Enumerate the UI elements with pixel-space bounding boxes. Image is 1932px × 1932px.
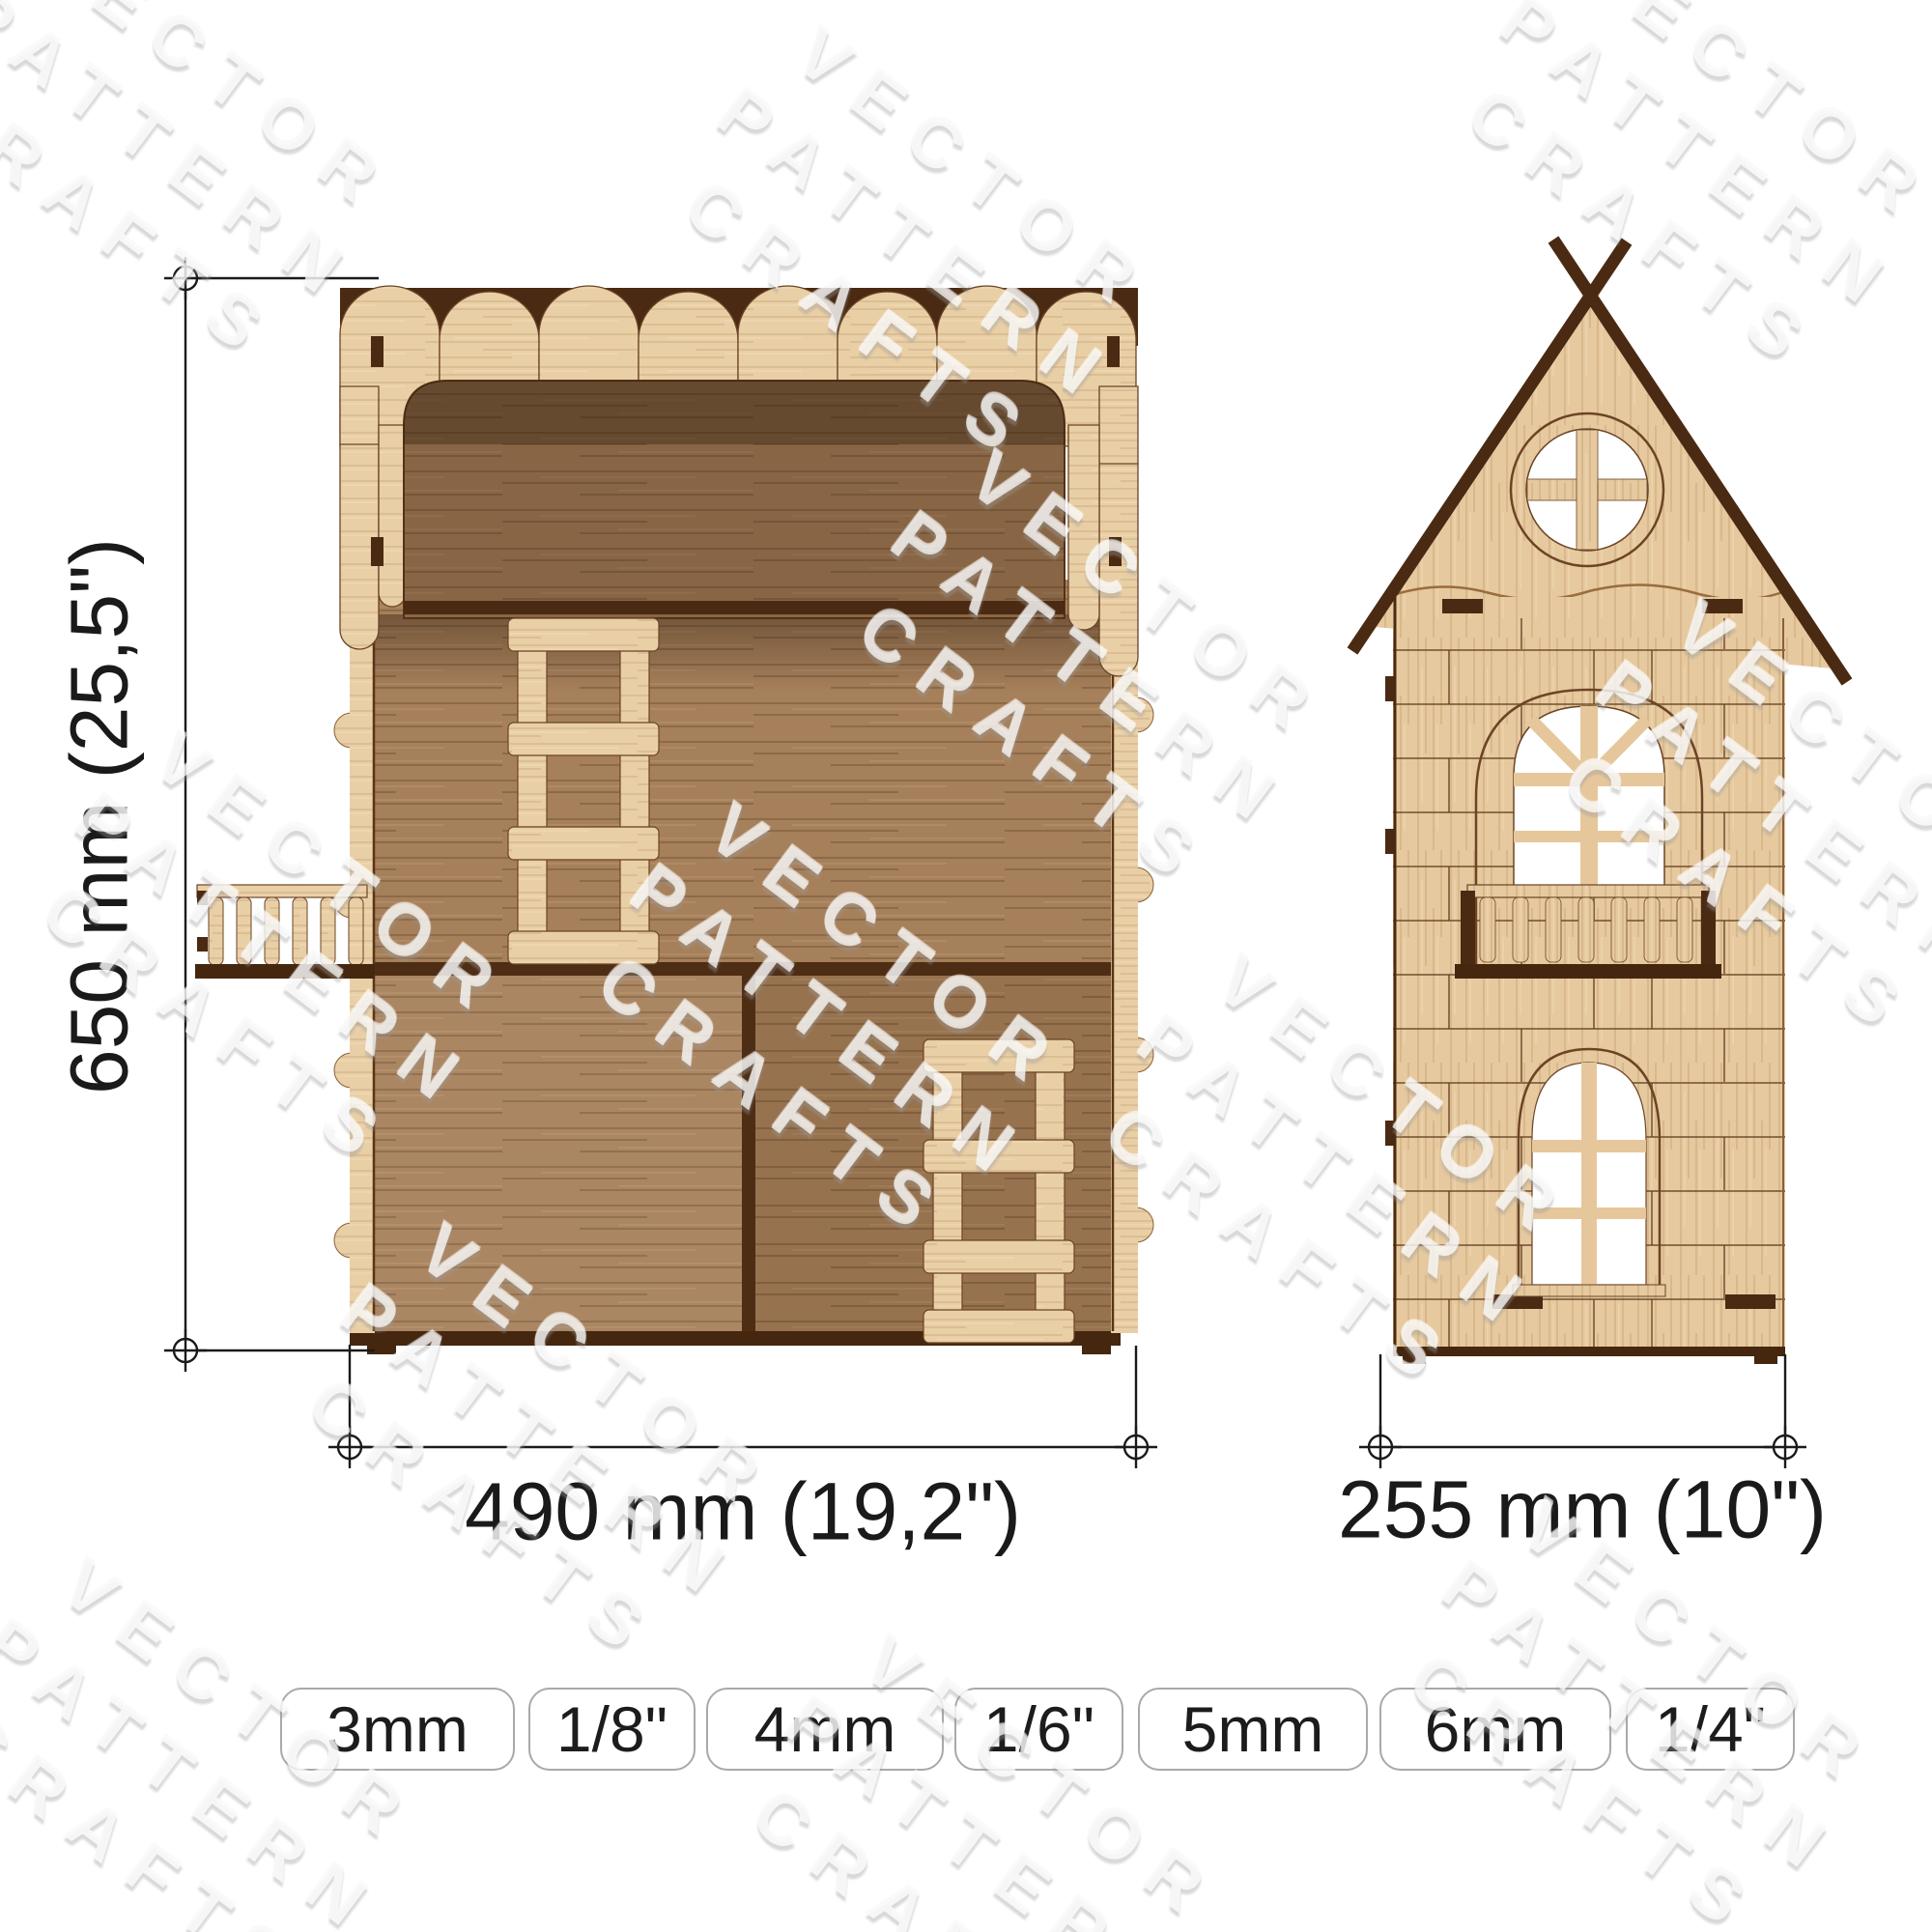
front-right-wall	[1111, 638, 1153, 1333]
thickness-badge-1-8in: 1/8"	[528, 1688, 696, 1771]
front-foot-tab	[1082, 1346, 1111, 1354]
thickness-badge-1-6in: 1/6"	[954, 1688, 1123, 1771]
round-window	[1511, 413, 1663, 566]
product-image: 650 mm (25,5") 490 mm (19,2") 255 mm (10…	[0, 0, 1932, 1932]
thickness-badge-1-4in: 1/4"	[1626, 1688, 1795, 1771]
side-view-drawing	[1352, 240, 1847, 1364]
front-mid-floor	[350, 962, 1121, 976]
dollhouse-drawing	[0, 0, 1932, 1932]
front-view-drawing	[195, 286, 1153, 1354]
thickness-badge-4mm: 4mm	[706, 1688, 944, 1771]
front-roof	[340, 286, 1138, 676]
height-dimension-label: 650 mm (25,5")	[53, 538, 147, 1094]
thickness-badge-6mm: 6mm	[1379, 1688, 1611, 1771]
thickness-badge-5mm: 5mm	[1138, 1688, 1368, 1771]
attic-floor-line	[404, 601, 1065, 614]
front-width-dimension-label: 490 mm (19,2")	[465, 1465, 1021, 1559]
front-left-wall	[334, 626, 375, 1333]
front-room-divider	[742, 976, 755, 1335]
thickness-badge-3mm: 3mm	[280, 1688, 515, 1771]
side-width-dimension-label: 255 mm (10")	[1338, 1463, 1827, 1557]
